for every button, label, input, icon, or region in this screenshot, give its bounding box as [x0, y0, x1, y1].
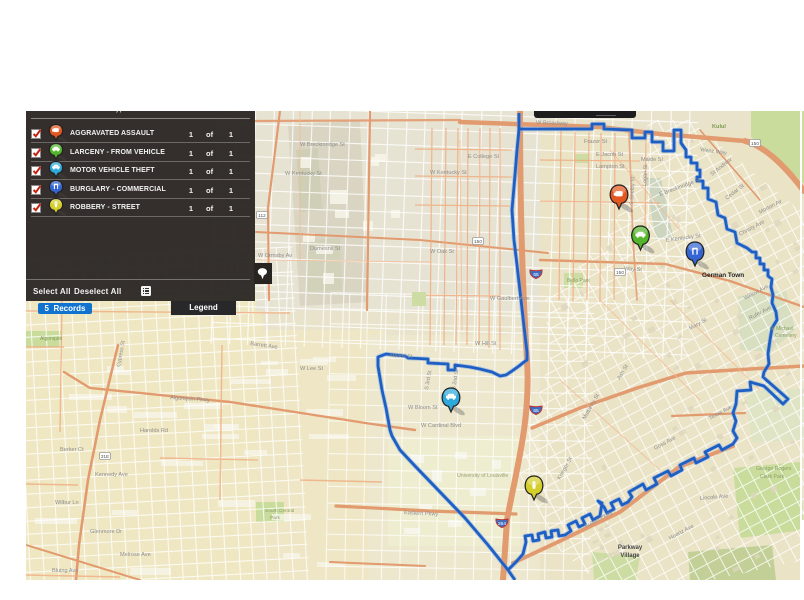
svg-text:Berker Ct: Berker Ct [60, 447, 84, 453]
svg-text:W Bloom St: W Bloom St [408, 405, 438, 411]
svg-text:Glenmore Dr: Glenmore Dr [90, 529, 122, 535]
svg-text:E Jacob St: E Jacob St [596, 152, 623, 158]
svg-text:264: 264 [498, 521, 506, 527]
svg-text:Lampton St: Lampton St [596, 164, 625, 170]
svg-text:St Michael: St Michael [770, 326, 793, 332]
svg-text:Parkway: Parkway [618, 545, 643, 551]
svg-text:German Town: German Town [702, 272, 744, 279]
svg-text:Maide St: Maide St [641, 157, 664, 163]
svg-text:Way St: Way St [624, 266, 643, 273]
svg-text:Kulul: Kulul [712, 124, 726, 130]
svg-text:W Broadway: W Broadway [536, 120, 568, 127]
svg-text:W Gaulbert Ave: W Gaulbert Ave [490, 296, 529, 302]
svg-text:South Central: South Central [265, 508, 294, 514]
svg-text:112: 112 [258, 213, 266, 219]
svg-text:65: 65 [533, 272, 539, 278]
svg-text:Logan St: Logan St [642, 164, 649, 186]
svg-text:W Oak St: W Oak St [430, 249, 454, 255]
svg-text:Clark Park: Clark Park [760, 474, 785, 480]
svg-text:Wilbur Ln: Wilbur Ln [55, 500, 79, 506]
svg-text:W Kentucky St: W Kentucky St [285, 171, 322, 177]
svg-text:Cemetery: Cemetery [775, 333, 797, 339]
svg-text:W Hill St: W Hill St [475, 341, 497, 347]
svg-text:Harolds Rd: Harolds Rd [140, 428, 168, 434]
svg-text:University of Louisville: University of Louisville [457, 473, 508, 479]
svg-text:E College St: E College St [468, 154, 500, 160]
svg-text:65: 65 [533, 408, 539, 414]
svg-text:150: 150 [616, 270, 624, 276]
svg-text:150: 150 [751, 141, 759, 147]
svg-text:Kennedy Ave: Kennedy Ave [95, 472, 128, 478]
svg-text:Frazer St: Frazer St [584, 139, 607, 145]
svg-text:150: 150 [474, 239, 482, 245]
svg-text:W Breckinridge St: W Breckinridge St [300, 142, 345, 148]
svg-text:W Cardinal Blvd: W Cardinal Blvd [421, 423, 461, 429]
svg-text:Park: Park [270, 515, 280, 521]
svg-text:Market St: Market St [390, 353, 413, 360]
svg-text:Algonquin: Algonquin [40, 336, 62, 342]
svg-text:W Lee St: W Lee St [300, 366, 323, 372]
svg-text:Melrose Ave: Melrose Ave [120, 552, 151, 558]
svg-text:Dumesnil St: Dumesnil St [310, 246, 341, 252]
svg-text:W Ormsby Av: W Ormsby Av [258, 253, 292, 259]
svg-text:Village: Village [620, 553, 640, 559]
svg-text:Bluing Ave: Bluing Ave [52, 568, 78, 574]
svg-text:George Rogers: George Rogers [756, 466, 792, 472]
svg-text:Bello Park: Bello Park [567, 278, 590, 284]
svg-text:31E: 31E [101, 454, 110, 460]
svg-text:W Kentucky St: W Kentucky St [430, 170, 467, 176]
